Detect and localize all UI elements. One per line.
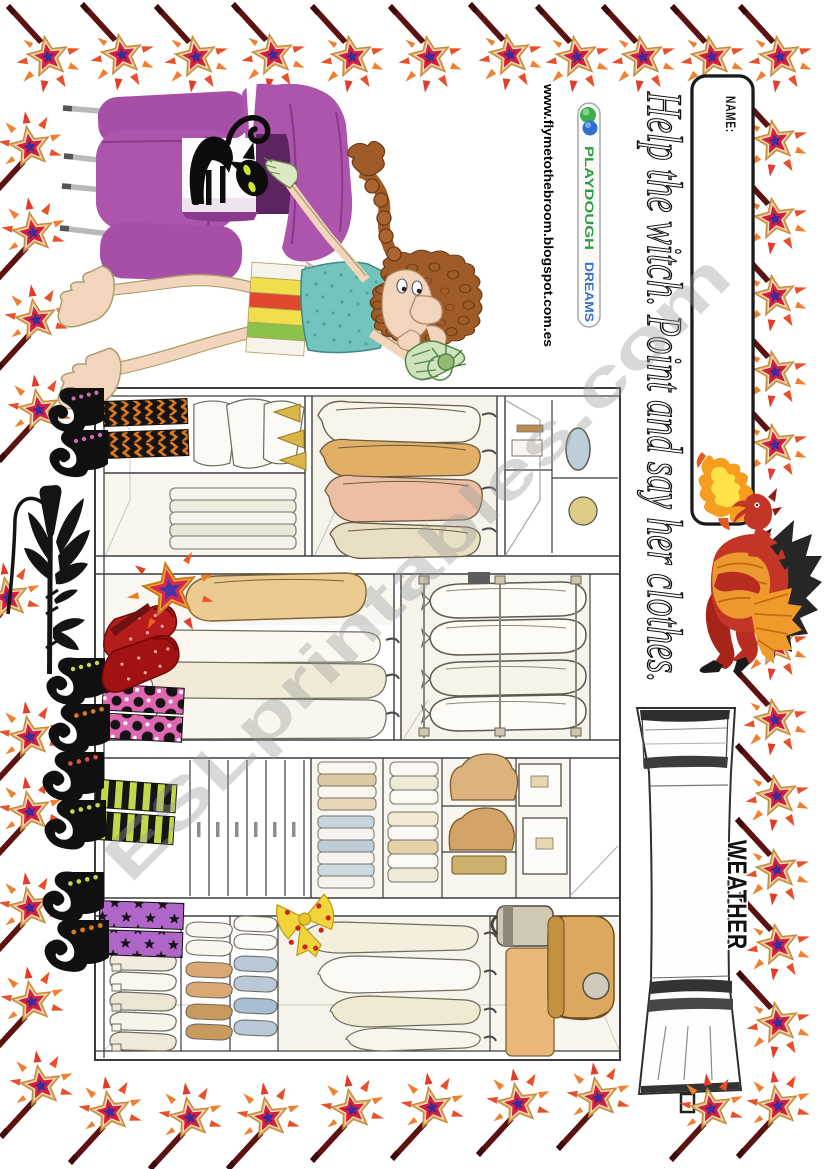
svg-text:WEATHER: WEATHER xyxy=(722,840,752,950)
svg-text:NAME:: NAME: xyxy=(723,96,738,133)
svg-text:www.flymetothebroom.blogspot.c: www.flymetothebroom.blogspot.com.es xyxy=(541,83,555,347)
svg-text:DREAMS: DREAMS xyxy=(582,262,596,322)
svg-text:PLAYDOUGH: PLAYDOUGH xyxy=(582,146,596,250)
